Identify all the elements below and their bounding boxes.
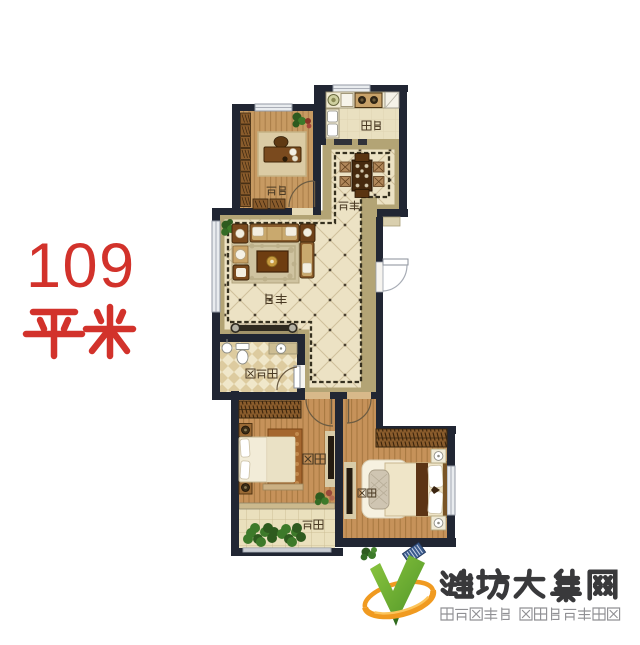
svg-text:109: 109 — [26, 231, 136, 301]
